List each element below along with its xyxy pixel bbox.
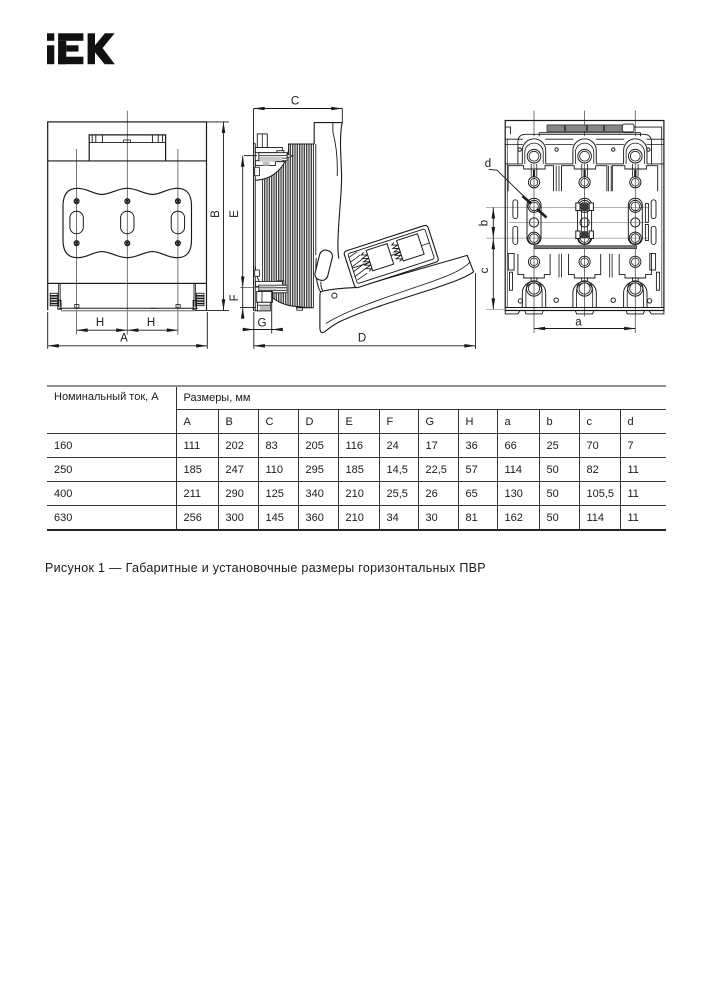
svg-text:C: C [291, 96, 299, 108]
svg-text:G: G [258, 318, 267, 330]
svg-text:a: a [575, 317, 582, 329]
svg-text:B: B [210, 210, 222, 218]
svg-text:D: D [358, 333, 366, 345]
svg-text:b: b [479, 220, 491, 226]
svg-text:H: H [147, 317, 155, 329]
svg-text:H: H [96, 317, 104, 329]
svg-text:F: F [229, 294, 241, 301]
svg-text:A: A [120, 333, 128, 345]
svg-text:d: d [485, 158, 491, 170]
svg-text:c: c [479, 267, 491, 273]
svg-text:E: E [229, 210, 241, 218]
